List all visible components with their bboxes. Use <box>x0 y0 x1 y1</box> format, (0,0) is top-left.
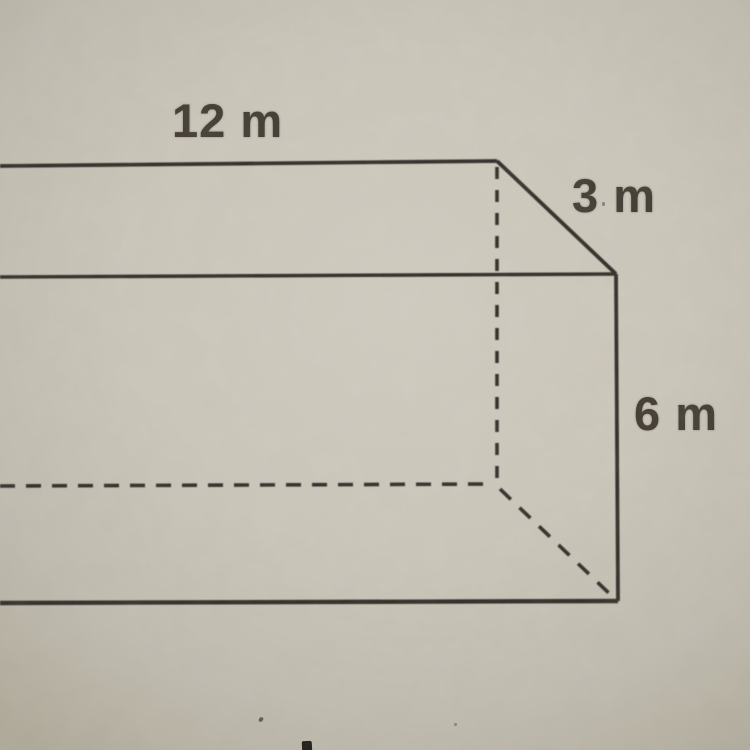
depth-dimension-label: 3 m <box>572 170 656 222</box>
cropped-text-fragment <box>302 741 313 750</box>
prism-diagram <box>0 0 750 750</box>
edge-hidden-bottom-back <box>0 484 494 486</box>
edge-front-top <box>0 274 616 277</box>
edge-top-back <box>0 161 497 166</box>
edge-front-bottom <box>0 601 618 603</box>
photographed-textbook-page: 12 m 3 m 6 m <box>0 0 750 750</box>
edge-front-right <box>616 274 618 601</box>
length-dimension-label: 12 m <box>172 95 283 147</box>
height-dimension-label: 6 m <box>634 388 718 440</box>
edge-hidden-bottom-depth <box>500 489 613 597</box>
